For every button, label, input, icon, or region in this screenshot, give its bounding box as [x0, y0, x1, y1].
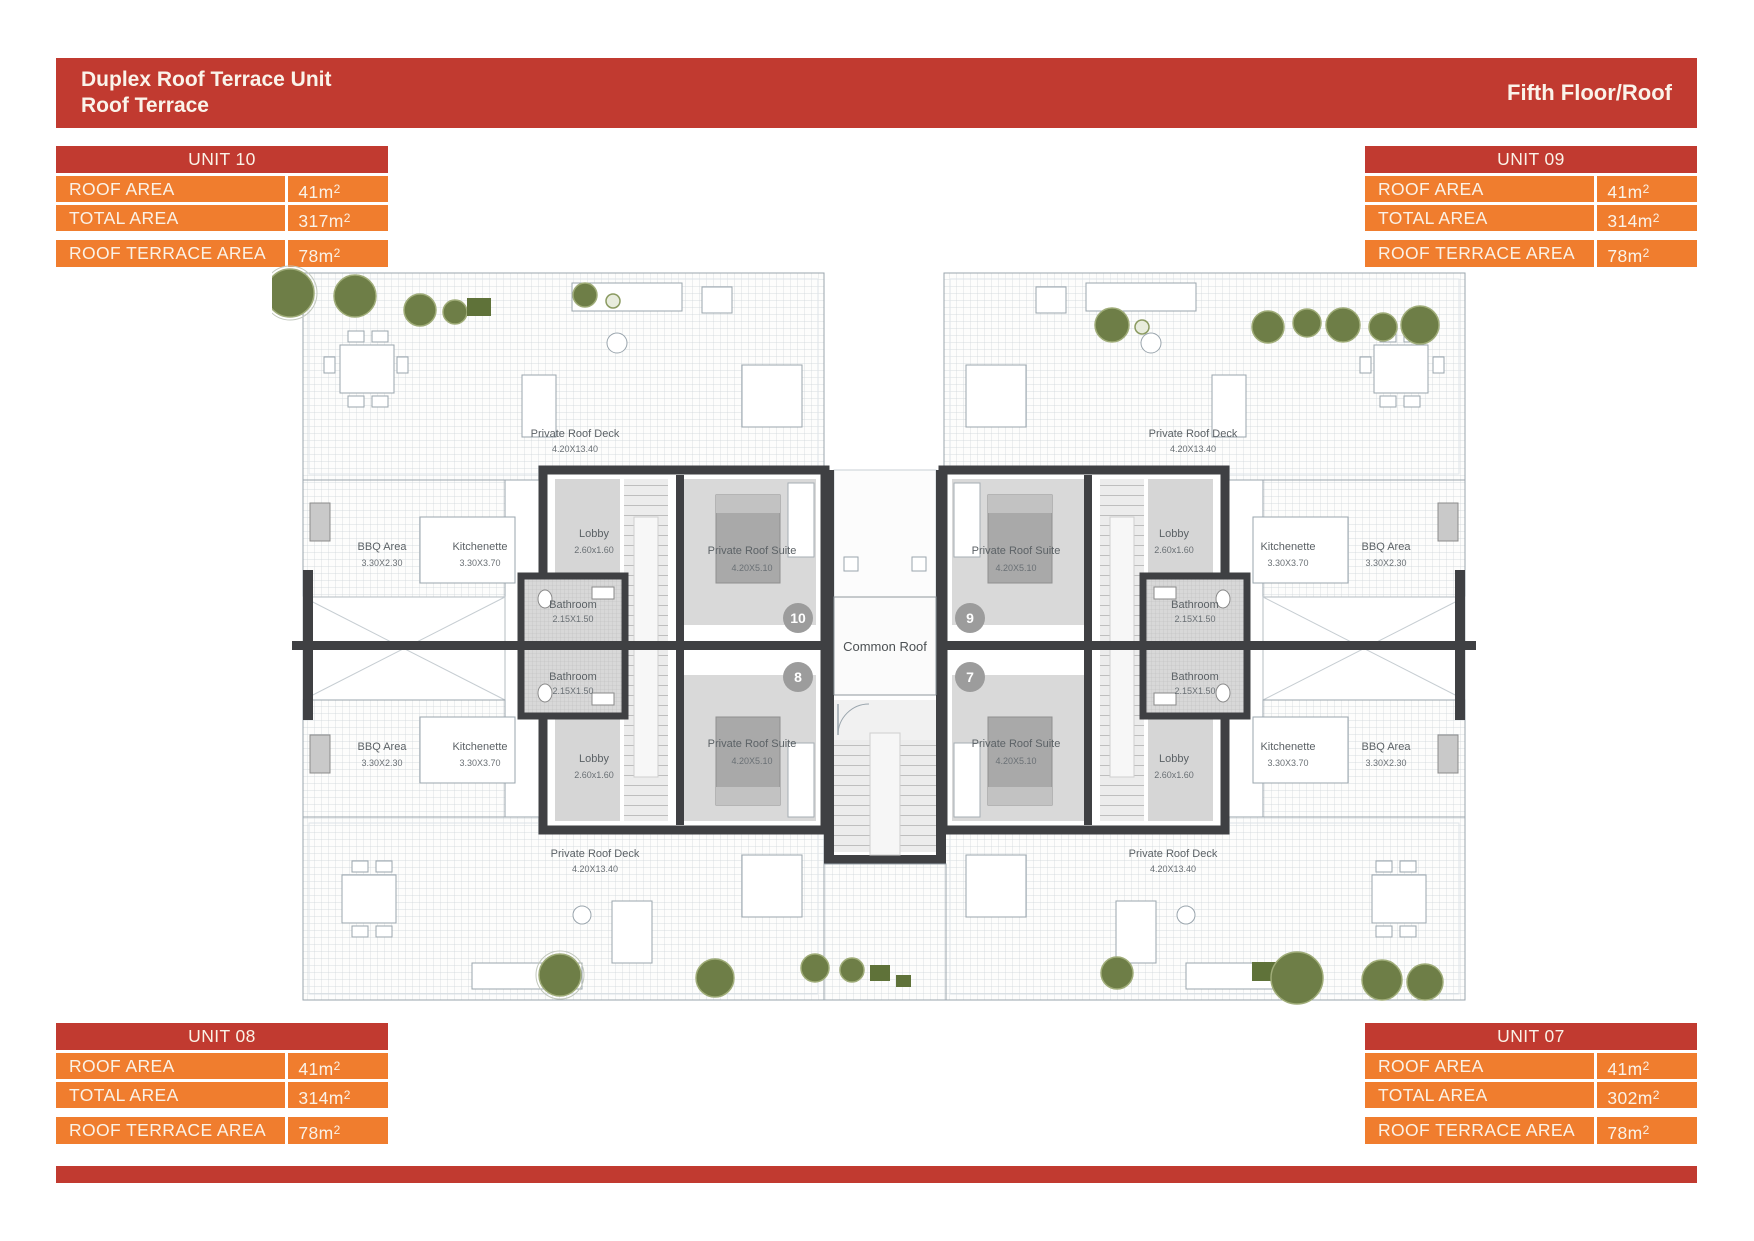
tree-symbol	[539, 954, 581, 996]
unit-08-table: UNIT 08 ROOF AREA 41m2 TOTAL AREA 314m2 …	[56, 1023, 388, 1144]
room-label-lobby: Lobby	[579, 753, 609, 765]
row-label: ROOF TERRACE AREA	[56, 1117, 288, 1144]
stair-stringer	[870, 733, 900, 855]
plan-sheet-page: Duplex Roof Terrace Unit Roof Terrace Fi…	[0, 0, 1754, 1241]
tree-symbol	[1271, 952, 1323, 1004]
value-text: 78m	[298, 1123, 333, 1143]
tree-symbol	[1369, 313, 1397, 341]
value-text: 41m	[298, 182, 333, 202]
value-text: 78m	[298, 246, 333, 266]
shrub-symbol	[467, 298, 491, 316]
value-text: 41m	[1607, 182, 1642, 202]
value-superscript: 2	[1643, 1123, 1650, 1137]
column-symbol	[912, 557, 926, 571]
room-label-bbq: BBQ Area	[1362, 541, 1412, 553]
room-label-bathroom: Bathroom	[549, 599, 597, 611]
value-superscript: 2	[1653, 211, 1660, 225]
room-label-deck: Private Roof Deck	[1129, 848, 1218, 860]
room-dims-deck: 4.20X13.40	[572, 864, 618, 874]
room-dims-bbq: 3.30X2.30	[1365, 758, 1406, 768]
unit-07-marker-number: 7	[966, 669, 974, 685]
room-label-suite: Private Roof Suite	[972, 545, 1061, 557]
room-label-deck: Private Roof Deck	[1149, 428, 1238, 440]
room-dims-suite: 4.20X5.10	[995, 563, 1036, 573]
core-wall-right	[936, 470, 946, 700]
row-label: ROOF AREA	[1365, 176, 1597, 202]
room-dims-suite: 4.20X5.10	[731, 563, 772, 573]
row-value: 41m2	[1597, 176, 1697, 202]
footer-bar	[56, 1166, 1697, 1183]
room-dims-bathroom: 2.15X1.50	[1174, 614, 1215, 624]
value-text: 78m	[1607, 246, 1642, 266]
value-text: 302m	[1607, 1088, 1652, 1108]
room-dims-deck: 4.20X13.40	[1150, 864, 1196, 874]
left-building-geometry	[292, 273, 826, 1000]
value-text: 41m	[298, 1059, 333, 1079]
tree-symbol	[606, 294, 620, 308]
unit-08-marker-number: 8	[794, 669, 802, 685]
table-row: ROOF TERRACE AREA 78m2	[56, 1117, 388, 1144]
shrub-symbol	[896, 975, 911, 987]
room-dims-suite: 4.20X5.10	[995, 756, 1036, 766]
core-wall-left	[824, 470, 834, 700]
page-title-line1: Duplex Roof Terrace Unit	[81, 67, 331, 93]
room-label-bbq: BBQ Area	[358, 541, 408, 553]
unit-09-marker-number: 9	[966, 610, 974, 626]
row-label: TOTAL AREA	[1365, 1082, 1597, 1108]
room-label-bbq: BBQ Area	[1362, 741, 1412, 753]
unit-10-marker-number: 10	[790, 610, 806, 626]
stair-wall-right	[936, 695, 946, 860]
row-value: 317m2	[288, 205, 388, 231]
room-label-deck: Private Roof Deck	[551, 848, 640, 860]
tree-symbol	[1362, 960, 1402, 1000]
unit-09-table: UNIT 09 ROOF AREA 41m2 TOTAL AREA 314m2 …	[1365, 146, 1697, 267]
row-value: 78m2	[288, 1117, 388, 1144]
room-dims-deck: 4.20X13.40	[1170, 444, 1216, 454]
table-row: ROOF TERRACE AREA 78m2	[56, 240, 388, 267]
tree-symbol	[840, 958, 864, 982]
table-row: ROOF AREA 41m2	[1365, 1053, 1697, 1079]
room-dims-bbq: 3.30X2.30	[361, 758, 402, 768]
room-dims-bathroom: 2.15X1.50	[552, 614, 593, 624]
row-value: 314m2	[288, 1082, 388, 1108]
table-row: ROOF TERRACE AREA 78m2	[1365, 1117, 1697, 1144]
table-row: TOTAL AREA 302m2	[1365, 1082, 1697, 1108]
room-dims-bbq: 3.30X2.30	[1365, 558, 1406, 568]
row-label: ROOF AREA	[56, 176, 288, 202]
row-label: ROOF AREA	[1365, 1053, 1597, 1079]
page-title-line2: Roof Terrace	[81, 93, 331, 119]
row-label: ROOF TERRACE AREA	[56, 240, 288, 267]
room-label-suite: Private Roof Suite	[708, 545, 797, 557]
tree-symbol	[334, 275, 376, 317]
table-gap	[1365, 1108, 1697, 1117]
room-label-kitchenette: Kitchenette	[452, 541, 507, 553]
row-value: 78m2	[1597, 1117, 1697, 1144]
value-superscript: 2	[344, 211, 351, 225]
value-superscript: 2	[334, 246, 341, 260]
table-row: TOTAL AREA 317m2	[56, 205, 388, 231]
room-dims-lobby: 2.60x1.60	[1154, 770, 1194, 780]
tree-symbol	[1407, 964, 1443, 1000]
unit-10-table: UNIT 10 ROOF AREA 41m2 TOTAL AREA 317m2 …	[56, 146, 388, 267]
table-row: ROOF AREA 41m2	[56, 176, 388, 202]
room-label-lobby: Lobby	[579, 528, 609, 540]
room-label-common-roof: Common Roof	[843, 639, 927, 654]
room-label-kitchenette: Kitchenette	[1260, 541, 1315, 553]
room-label-bathroom: Bathroom	[1171, 599, 1219, 611]
value-superscript: 2	[334, 182, 341, 196]
page-title: Duplex Roof Terrace Unit Roof Terrace	[81, 67, 331, 119]
room-dims-kitchenette: 3.30X3.70	[459, 558, 500, 568]
room-dims-lobby: 2.60x1.60	[574, 545, 614, 555]
tree-symbol	[696, 959, 734, 997]
room-label-bbq: BBQ Area	[358, 741, 408, 753]
floor-label: Fifth Floor/Roof	[1507, 80, 1672, 106]
row-value: 41m2	[288, 176, 388, 202]
tree-symbol	[443, 300, 467, 324]
value-superscript: 2	[334, 1123, 341, 1137]
tree-symbol	[1095, 308, 1129, 342]
value-superscript: 2	[1643, 182, 1650, 196]
tree-symbol	[1101, 957, 1133, 989]
table-row: ROOF AREA 41m2	[1365, 176, 1697, 202]
stair-wall-left	[824, 695, 834, 860]
room-label-kitchenette: Kitchenette	[1260, 741, 1315, 753]
unit-10-title: UNIT 10	[56, 146, 388, 173]
row-label: TOTAL AREA	[56, 205, 288, 231]
room-dims-lobby: 2.60x1.60	[1154, 545, 1194, 555]
unit-07-table: UNIT 07 ROOF AREA 41m2 TOTAL AREA 302m2 …	[1365, 1023, 1697, 1144]
value-superscript: 2	[1643, 1059, 1650, 1073]
room-label-suite: Private Roof Suite	[708, 738, 797, 750]
row-value: 314m2	[1597, 205, 1697, 231]
tree-symbol	[801, 954, 829, 982]
room-label-bathroom: Bathroom	[1171, 671, 1219, 683]
row-value: 302m2	[1597, 1082, 1697, 1108]
room-label-suite: Private Roof Suite	[972, 738, 1061, 750]
row-value: 41m2	[288, 1053, 388, 1079]
right-building-geometry	[942, 273, 1476, 1000]
tree-symbol	[1252, 311, 1284, 343]
floor-plan-drawing: 10 9 8 7	[272, 265, 1496, 1007]
central-bay	[834, 470, 936, 597]
stair-wall-bottom	[824, 855, 946, 864]
table-row: ROOF AREA 41m2	[56, 1053, 388, 1079]
unit-08-title: UNIT 08	[56, 1023, 388, 1050]
room-dims-kitchenette: 3.30X3.70	[1267, 758, 1308, 768]
unit-07-title: UNIT 07	[1365, 1023, 1697, 1050]
room-label-lobby: Lobby	[1159, 753, 1189, 765]
tree-symbol	[272, 269, 314, 317]
row-value: 78m2	[288, 240, 388, 267]
value-text: 314m	[298, 1088, 343, 1108]
room-dims-bathroom: 2.15X1.50	[552, 686, 593, 696]
tree-symbol	[1326, 308, 1360, 342]
value-text: 314m	[1607, 211, 1652, 231]
room-dims-kitchenette: 3.30X3.70	[459, 758, 500, 768]
value-text: 78m	[1607, 1123, 1642, 1143]
room-dims-bbq: 3.30X2.30	[361, 558, 402, 568]
value-superscript: 2	[1643, 246, 1650, 260]
room-label-bathroom: Bathroom	[549, 671, 597, 683]
value-superscript: 2	[334, 1059, 341, 1073]
table-row: TOTAL AREA 314m2	[1365, 205, 1697, 231]
column-symbol	[844, 557, 858, 571]
shrub-symbol	[870, 965, 890, 981]
header-bar: Duplex Roof Terrace Unit Roof Terrace Fi…	[56, 58, 1697, 128]
row-label: TOTAL AREA	[1365, 205, 1597, 231]
value-superscript: 2	[344, 1088, 351, 1102]
unit-09-title: UNIT 09	[1365, 146, 1697, 173]
table-gap	[56, 231, 388, 240]
room-label-lobby: Lobby	[1159, 528, 1189, 540]
room-dims-bathroom: 2.15X1.50	[1174, 686, 1215, 696]
table-row: TOTAL AREA 314m2	[56, 1082, 388, 1108]
tree-symbol	[1401, 306, 1439, 344]
floor-plan: 10 9 8 7	[272, 265, 1496, 1007]
room-dims-deck: 4.20X13.40	[552, 444, 598, 454]
room-dims-kitchenette: 3.30X3.70	[1267, 558, 1308, 568]
room-dims-lobby: 2.60x1.60	[574, 770, 614, 780]
table-gap	[56, 1108, 388, 1117]
value-text: 41m	[1607, 1059, 1642, 1079]
row-label: ROOF AREA	[56, 1053, 288, 1079]
tree-symbol	[573, 283, 597, 307]
tree-symbol	[404, 294, 436, 326]
table-gap	[1365, 231, 1697, 240]
row-value: 41m2	[1597, 1053, 1697, 1079]
row-value: 78m2	[1597, 240, 1697, 267]
table-row: ROOF TERRACE AREA 78m2	[1365, 240, 1697, 267]
row-label: TOTAL AREA	[56, 1082, 288, 1108]
row-label: ROOF TERRACE AREA	[1365, 1117, 1597, 1144]
row-label: ROOF TERRACE AREA	[1365, 240, 1597, 267]
room-dims-suite: 4.20X5.10	[731, 756, 772, 766]
room-label-deck: Private Roof Deck	[531, 428, 620, 440]
value-superscript: 2	[1653, 1088, 1660, 1102]
central-core	[824, 470, 946, 1000]
room-label-kitchenette: Kitchenette	[452, 741, 507, 753]
value-text: 317m	[298, 211, 343, 231]
tree-symbol	[1135, 320, 1149, 334]
tree-symbol	[1293, 309, 1321, 337]
